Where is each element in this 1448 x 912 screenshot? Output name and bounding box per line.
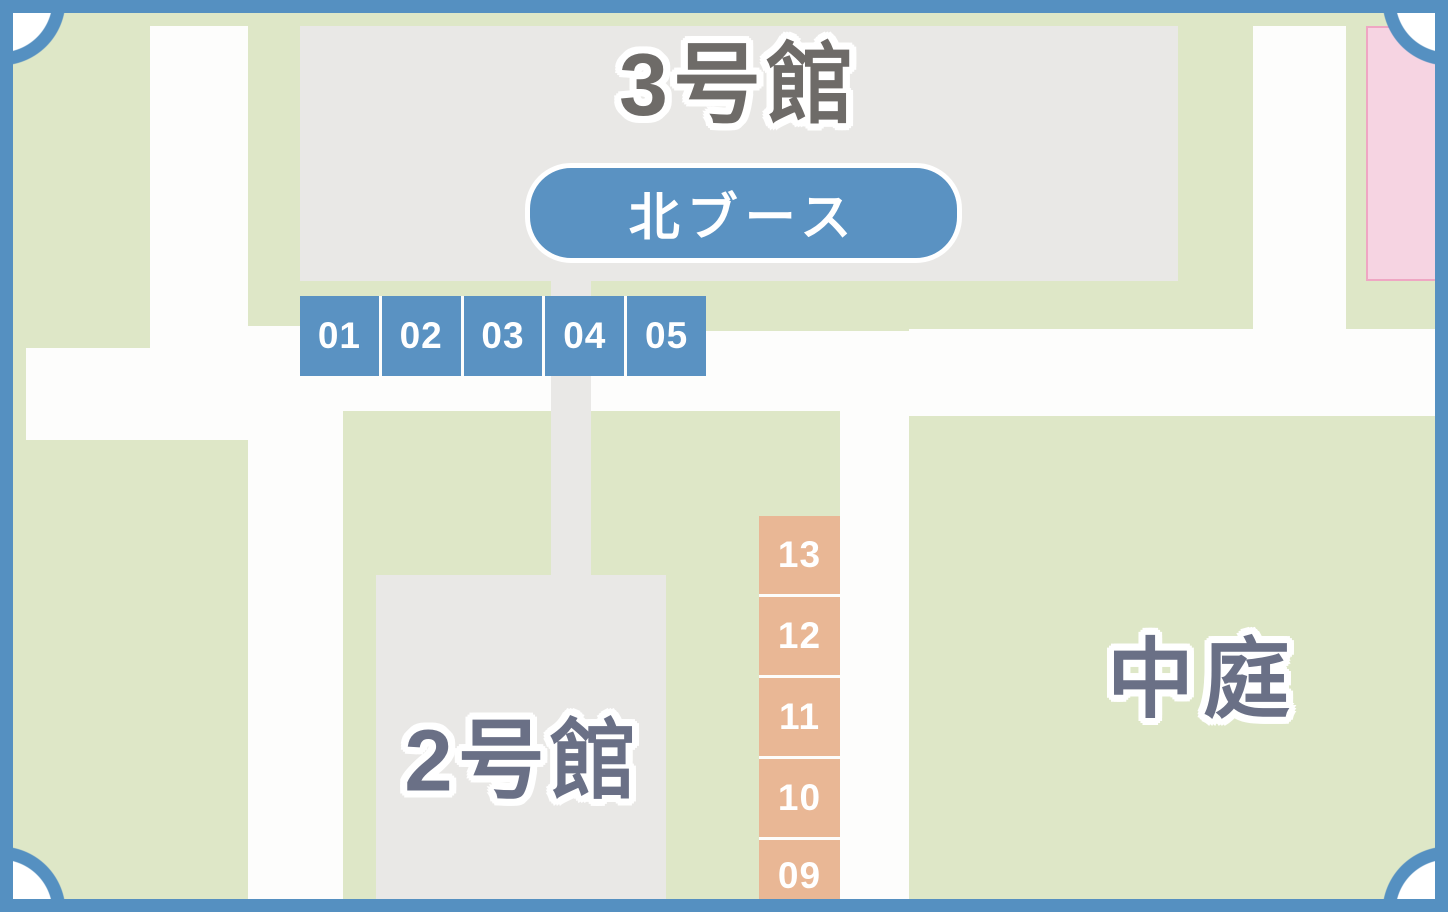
corner-notch-bottom-right: [1356, 820, 1448, 912]
pink-area: [1366, 26, 1448, 281]
walkway-vertical-top-left: [150, 26, 248, 440]
corner-notch-top-left: [0, 0, 92, 92]
building-2-label: 2号館: [404, 718, 641, 805]
lawn-lower-left: [26, 440, 248, 912]
booth-04[interactable]: 04: [545, 296, 624, 376]
booth-13[interactable]: 13: [759, 516, 840, 594]
walkway-horizontal-center-right: [706, 331, 840, 411]
walkway-horizontal-center: [343, 376, 706, 411]
booth-11[interactable]: 11: [759, 678, 840, 756]
building-3-label: 3号館: [619, 41, 859, 129]
walkway-vertical-center: [840, 331, 909, 912]
booth-01[interactable]: 01: [300, 296, 379, 376]
booth-09[interactable]: 09: [759, 840, 840, 912]
booth-strip-east: 13 12 11 10 09: [759, 516, 840, 912]
walkway-vertical-top-right: [1253, 26, 1346, 329]
booth-12[interactable]: 12: [759, 597, 840, 675]
walkway-horizontal-right: [909, 329, 1448, 416]
courtyard-label: 中庭: [1107, 637, 1299, 724]
north-booth-badge[interactable]: 北ブース: [525, 163, 962, 263]
booth-03[interactable]: 03: [464, 296, 543, 376]
campus-map: 01 02 03 04 05 13 12 11 10 09 3号館 北ブース 2…: [0, 0, 1448, 912]
walkway-vertical-bottom-left: [248, 326, 343, 912]
booth-10[interactable]: 10: [759, 759, 840, 837]
booth-05[interactable]: 05: [627, 296, 706, 376]
booth-02[interactable]: 02: [382, 296, 461, 376]
booth-strip-north: 01 02 03 04 05: [300, 296, 706, 376]
walkway-horizontal-left: [26, 348, 150, 440]
